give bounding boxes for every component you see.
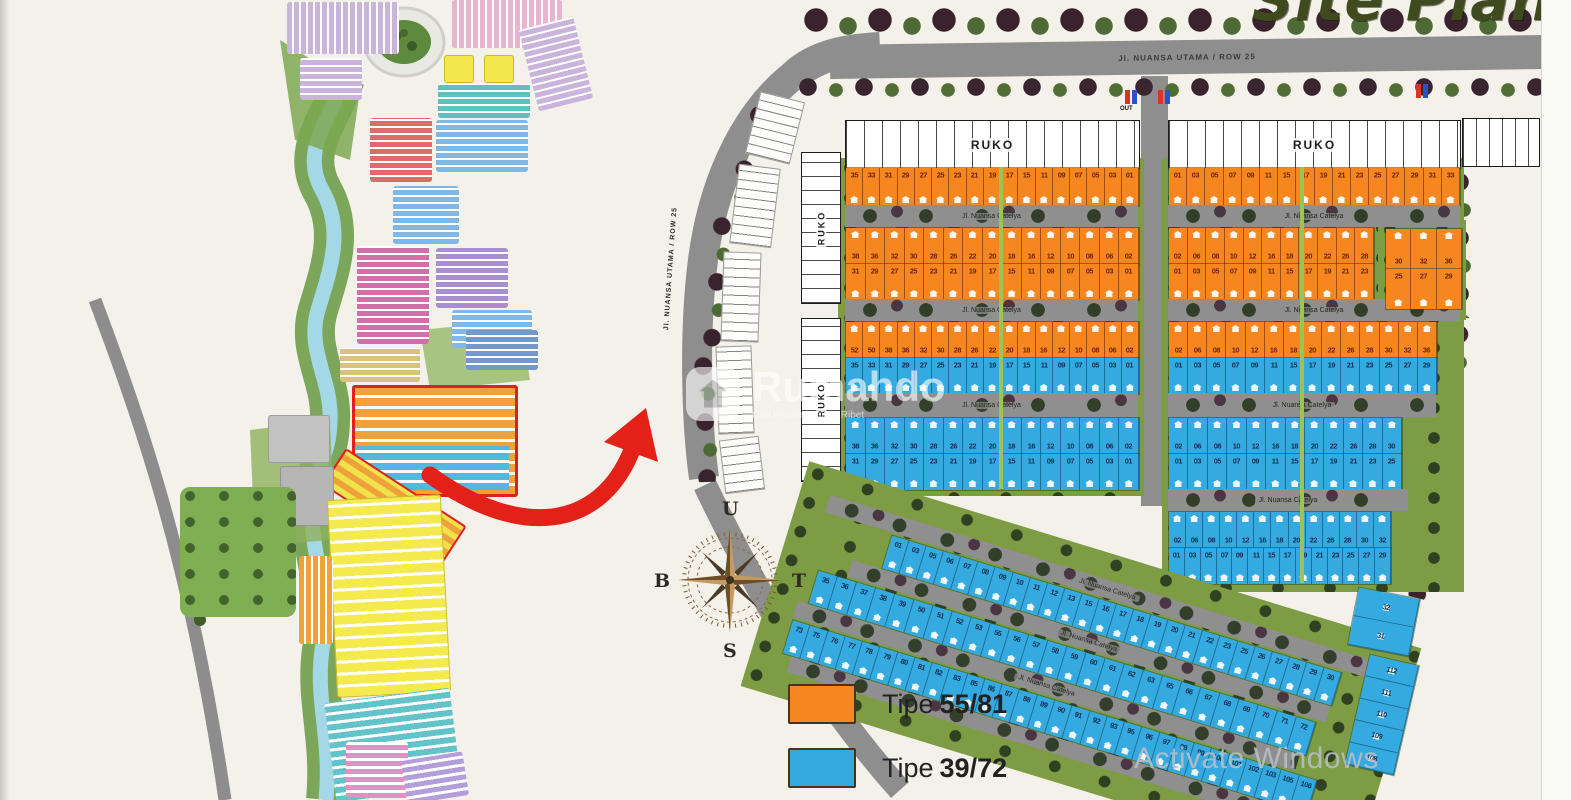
lot-25: 25 (1369, 168, 1387, 206)
lot-08: 08 (1080, 418, 1100, 454)
lot-number: 68 (1223, 699, 1232, 708)
lot-09: 09 (1232, 548, 1248, 584)
lot-number: 62 (1127, 670, 1136, 679)
lot-22: 22 (1322, 322, 1341, 358)
lot-number: 32 (1378, 537, 1385, 544)
cluster-orange-left (299, 556, 333, 644)
lot-07: 07 (1224, 168, 1242, 206)
lot-number: 89 (1039, 700, 1048, 709)
lot-25: 25 (905, 454, 925, 490)
lot-18: 18 (1271, 512, 1288, 548)
lot-row: 0103050709111517192123252729 (1168, 547, 1392, 585)
lot-21: 21 (1333, 168, 1351, 206)
lot-23: 23 (1363, 454, 1382, 490)
gate-in-out-left (1125, 90, 1137, 104)
lot-number: 11 (1028, 458, 1035, 465)
compass-star-icon (670, 520, 790, 640)
page-title: Site Plan (1252, 0, 1553, 34)
lot-29: 29 (1375, 548, 1391, 584)
lot-number: 23 (1369, 458, 1376, 465)
lot-17: 17 (1280, 548, 1296, 584)
lot-row: 0206081012161820222628 (1168, 227, 1375, 265)
lot-number: 18 (1008, 253, 1015, 260)
lot-number: 06 (1190, 537, 1197, 544)
lot-number: 36 (1445, 258, 1452, 265)
parking-strip-5 (719, 436, 765, 494)
lot-number: 58 (1051, 646, 1060, 655)
compass-east-label: T (792, 570, 806, 592)
lot-number: 05 (1210, 172, 1217, 179)
lot-number: 09 (1247, 172, 1254, 179)
lot-09: 09 (1247, 454, 1266, 490)
lot-number: 75 (812, 631, 821, 640)
lot-number: 26 (949, 253, 956, 260)
lot-number: 37 (859, 588, 868, 597)
lot-27: 27 (915, 168, 932, 206)
lot-number: 16 (1267, 253, 1274, 260)
lot-23: 23 (924, 264, 944, 300)
lot-number: 39 (898, 600, 907, 609)
lot-number: 17 (1308, 362, 1315, 369)
lot-16: 16 (1036, 322, 1053, 358)
lot-number: 31 (852, 268, 859, 275)
lot-number: 28 (1344, 537, 1351, 544)
lot-number: 21 (1349, 458, 1356, 465)
lot-30: 30 (1357, 512, 1374, 548)
out-arrow-icon (1423, 84, 1428, 98)
lot-31: 31 (1424, 168, 1442, 206)
lot-number: 18 (1136, 615, 1145, 624)
lot-number: 36 (871, 443, 878, 450)
lot-number: 27 (891, 458, 898, 465)
lot-06: 06 (1186, 512, 1203, 548)
lot-23: 23 (1355, 264, 1374, 300)
lot-number: 18 (1289, 347, 1296, 354)
lot-07: 07 (1217, 548, 1233, 584)
lot-29: 29 (866, 264, 886, 300)
lot-number: 21 (971, 362, 978, 369)
lot-01: 01 (1122, 358, 1139, 394)
lot-number: 23 (1366, 362, 1373, 369)
lot-27: 27 (1387, 168, 1405, 206)
cluster-blue-1 (436, 120, 528, 172)
legend-label: Tipe55/81 (882, 689, 1007, 720)
lot-21: 21 (944, 264, 964, 300)
lot-25: 25 (1343, 548, 1359, 584)
lot-number: 10 (1075, 347, 1082, 354)
lot-03: 03 (1187, 168, 1205, 206)
lot-05: 05 (1087, 358, 1104, 394)
lot-number: 27 (1274, 657, 1283, 666)
lot-number: 10 (1230, 253, 1237, 260)
lot-number: 21 (1342, 268, 1349, 275)
lot-number: 09 (1047, 268, 1054, 275)
lot-number: 22 (988, 347, 995, 354)
lot-number: 50 (917, 605, 926, 614)
lot-17: 17 (1001, 358, 1018, 394)
lot-number: 06 (1106, 443, 1113, 450)
lot-03: 03 (1188, 264, 1207, 300)
lot-row: 01030507091115171921232527293133 (1168, 167, 1461, 207)
lot-26: 26 (1341, 322, 1360, 358)
street-label: Jl. Nuansa Catelya (958, 307, 1025, 314)
lot-number: 07 (963, 562, 972, 571)
lot-number: 15 (1023, 362, 1030, 369)
lot-number: 09 (1057, 362, 1064, 369)
lot-number: 12 (1252, 443, 1259, 450)
lot-29: 29 (1437, 269, 1462, 309)
lot-number: 21 (1316, 552, 1323, 559)
lot-number: 17 (988, 458, 995, 465)
lot-number: 07 (1220, 552, 1227, 559)
lot-number: 51 (936, 611, 945, 620)
lot-number: 77 (847, 642, 856, 651)
lot-number: 18 (1008, 443, 1015, 450)
lot-number: 08 (1213, 347, 1220, 354)
lot-number: 20 (988, 443, 995, 450)
top-road-label: Jl. NUANSA UTAMA / ROW 25 (830, 48, 1544, 67)
lot-number: 50 (868, 347, 875, 354)
lot-08: 08 (1206, 228, 1225, 264)
lot-number: 07 (1075, 362, 1082, 369)
lot-05: 05 (1206, 264, 1225, 300)
lot-10: 10 (1225, 228, 1244, 264)
lot-number: 91 (1074, 711, 1083, 720)
lot-01: 01 (1122, 168, 1139, 206)
lot-21: 21 (1312, 548, 1328, 584)
activate-windows-watermark: Activate Windows (1134, 742, 1379, 776)
lot-38: 38 (880, 322, 897, 358)
lot-36: 36 (898, 322, 915, 358)
lot-number: 16 (1101, 604, 1110, 613)
lot-09: 09 (1041, 454, 1061, 490)
lot-number: 18 (1286, 253, 1293, 260)
lot-11: 11 (1022, 264, 1042, 300)
lot-number: 08 (1086, 253, 1093, 260)
lot-12: 12 (1041, 418, 1061, 454)
lot-number: 16 (1040, 347, 1047, 354)
lot-11: 11 (1036, 358, 1053, 394)
lot-number: 11 (1268, 268, 1275, 275)
lot-number: 23 (1361, 268, 1368, 275)
compass-west-label: B (654, 570, 670, 592)
lot-number: 03 (1106, 268, 1113, 275)
lot-number: 79 (882, 652, 891, 661)
lot-number: 19 (988, 172, 995, 179)
lot-06: 06 (1100, 228, 1120, 264)
lot-number: 67 (1204, 693, 1213, 702)
lot-number: 01 (1174, 268, 1181, 275)
lot-number: 03 (1106, 458, 1113, 465)
lot-number: 28 (1369, 443, 1376, 450)
lot-07: 07 (1061, 454, 1081, 490)
compass-south-label: S (723, 640, 737, 662)
lot-number: 11 (1028, 268, 1035, 275)
lot-number: 13 (1066, 594, 1075, 603)
lot-number: 38 (878, 594, 887, 603)
lot-02: 02 (1169, 322, 1188, 358)
in-arrow-icon (1416, 84, 1421, 98)
lot-16: 16 (1262, 228, 1281, 264)
lot-28: 28 (1355, 228, 1374, 264)
lot-row: 383632302826222018161210080602 (845, 227, 1140, 265)
lot-number: 23 (1331, 552, 1338, 559)
lot-number: 27 (891, 268, 898, 275)
lot-number: 05 (1211, 268, 1218, 275)
lot-03: 03 (1188, 454, 1207, 490)
ruko-strip-right: RUKO (1168, 120, 1461, 169)
rumahdo-brand-text: Rumahdo (752, 366, 946, 408)
lot-12: 12 (1237, 512, 1254, 548)
lot-number: 15 (1289, 362, 1296, 369)
lot-number: 31 (1377, 631, 1386, 640)
lot-26: 26 (1337, 228, 1356, 264)
lot-23: 23 (1351, 168, 1369, 206)
lot-number: 21 (949, 268, 956, 275)
lot-31: 31 (846, 264, 866, 300)
lot-number: 05 (1213, 362, 1220, 369)
lot-number: 10 (1225, 537, 1232, 544)
lot-22: 22 (963, 228, 983, 264)
lot-number: 01 (1125, 458, 1132, 465)
lot-10: 10 (1061, 418, 1081, 454)
lot-19: 19 (963, 454, 983, 490)
lot-number: 109 (1370, 731, 1382, 741)
park-green (180, 487, 296, 617)
lot-number: 110 (1376, 710, 1388, 720)
lot-number: 59 (1070, 652, 1079, 661)
lot-01: 01 (1169, 454, 1188, 490)
lot-05: 05 (1208, 454, 1227, 490)
lot-number: 55 (993, 629, 1002, 638)
left-edge-shadow (0, 0, 10, 800)
lot-number: 12 (1242, 537, 1249, 544)
lot-number: 06 (1109, 347, 1116, 354)
lot-number: 15 (1008, 458, 1015, 465)
lot-number: 05 (1092, 172, 1099, 179)
lot-number: 16 (1270, 347, 1277, 354)
lot-number: 22 (1328, 347, 1335, 354)
lot-number: 90 (1057, 706, 1066, 715)
lot-number: 26 (1257, 652, 1266, 661)
lot-number: 25 (910, 458, 917, 465)
lot-number: 81 (917, 663, 926, 672)
lot-number: 01 (1174, 172, 1181, 179)
lot-number: 15 (1283, 172, 1290, 179)
lot-number: 01 (894, 541, 903, 550)
lot-number: 02 (1174, 347, 1181, 354)
compass-north-label: U (722, 498, 739, 520)
lot-number: 31 (885, 172, 892, 179)
lot-number: 03 (1189, 552, 1196, 559)
lot-number: 28 (1366, 347, 1373, 354)
lot-23: 23 (1328, 548, 1344, 584)
lot-number: 17 (1311, 458, 1318, 465)
lot-25: 25 (1383, 454, 1402, 490)
lot-15: 15 (1002, 454, 1022, 490)
lot-number: 29 (902, 172, 909, 179)
street: Jl. Nuansa Catelya (1168, 205, 1460, 227)
lot-number: 76 (830, 636, 839, 645)
lot-number: 02 (1126, 347, 1133, 354)
lot-20: 20 (1001, 322, 1018, 358)
lot-number: 61 (1108, 664, 1117, 673)
lot-21: 21 (967, 168, 984, 206)
lot-number: 19 (1153, 620, 1162, 629)
lot-number: 02 (1125, 443, 1132, 450)
lot-number: 15 (1291, 458, 1298, 465)
lot-number: 31 (1429, 172, 1436, 179)
lot-number: 19 (969, 458, 976, 465)
lot-number: 05 (1086, 458, 1093, 465)
lot-number: 32 (1404, 347, 1411, 354)
lot-09: 09 (1242, 168, 1260, 206)
lot-number: 105 (1282, 775, 1295, 785)
lot-number: 96 (1144, 732, 1153, 741)
lot-number: 57 (1031, 640, 1040, 649)
lot-number: 08 (1211, 253, 1218, 260)
lot-number: 52 (955, 617, 964, 626)
lot-number: 60 (1089, 658, 1098, 667)
lot-09: 09 (1244, 264, 1263, 300)
lot-06: 06 (1188, 418, 1207, 454)
lot-28: 28 (1360, 322, 1379, 358)
lot-number: 01 (1126, 172, 1133, 179)
lot-number: 10 (1233, 443, 1240, 450)
lot-number: 111 (1381, 688, 1392, 697)
lot-number: 28 (1361, 253, 1368, 260)
lot-number: 25 (1385, 362, 1392, 369)
lot-05: 05 (1080, 454, 1100, 490)
lot-number: 23 (954, 362, 961, 369)
lot-15: 15 (1002, 264, 1022, 300)
lot-30: 30 (1386, 229, 1411, 269)
lot-number: 07 (1230, 268, 1237, 275)
lot-number: 20 (1006, 347, 1013, 354)
lot-01: 01 (1169, 168, 1187, 206)
lot-number: 08 (1213, 443, 1220, 450)
lot-17: 17 (1303, 358, 1322, 394)
street-label: Jl. Nuansa Catelya (1281, 213, 1348, 220)
lot-01: 01 (1169, 264, 1188, 300)
lot-number: 30 (937, 347, 944, 354)
lot-28: 28 (924, 418, 944, 454)
lot-16: 16 (1266, 418, 1285, 454)
lot-number: 29 (871, 268, 878, 275)
lot-number: 30 (1388, 443, 1395, 450)
lot-number: 22 (969, 443, 976, 450)
lot-number: 08 (1092, 347, 1099, 354)
lot-row: 303236 (1385, 228, 1463, 270)
lot-number: 10 (1066, 443, 1073, 450)
cluster-tan (340, 348, 420, 382)
lot-36: 36 (866, 228, 886, 264)
rumahdo-watermark: Rumahdo Cari Properti Tanpa Ribet (686, 366, 946, 421)
lot-19: 19 (1322, 358, 1341, 394)
lot-number: 09 (1236, 552, 1243, 559)
lot-26: 26 (944, 228, 964, 264)
lot-number: 33 (868, 172, 875, 179)
lot-36: 36 (866, 418, 886, 454)
lot-number: 29 (1309, 668, 1318, 677)
lot-number: 20 (988, 253, 995, 260)
lot-12: 12 (1053, 322, 1070, 358)
lot-18: 18 (1018, 322, 1035, 358)
lot-row: 010305070911151719212325 (1168, 453, 1403, 491)
lot-08: 08 (1087, 322, 1104, 358)
lot-number: 36 (871, 253, 878, 260)
lot-07: 07 (1070, 168, 1087, 206)
lot-number: 17 (1305, 268, 1312, 275)
lot-number: 70 (1261, 711, 1270, 720)
lot-number: 23 (930, 268, 937, 275)
lot-number: 35 (850, 172, 857, 179)
gate-out-label: OUT (1120, 106, 1133, 112)
ruko-label: RUKO (1288, 138, 1341, 152)
lot-number: 21 (949, 458, 956, 465)
lot-23: 23 (1360, 358, 1379, 394)
lot-number: 12 (1249, 253, 1256, 260)
lot-18: 18 (1281, 228, 1300, 264)
lot-16: 16 (1022, 228, 1042, 264)
lot-38: 38 (846, 418, 866, 454)
lot-07: 07 (1070, 358, 1087, 394)
lot-number: 18 (1276, 537, 1283, 544)
lot-10: 10 (1226, 322, 1245, 358)
lot-22: 22 (963, 418, 983, 454)
lot-number: 29 (1445, 273, 1452, 280)
lot-pair-block: 3231 (1347, 586, 1421, 657)
lot-26: 26 (944, 418, 964, 454)
lot-number: 30 (910, 443, 917, 450)
lot-number: 01 (1125, 268, 1132, 275)
lot-32: 32 (1399, 322, 1418, 358)
ruko-label: RUKO (816, 208, 826, 249)
lot-11: 11 (1265, 358, 1284, 394)
lot-02: 02 (1169, 512, 1186, 548)
lot-28: 28 (1363, 418, 1382, 454)
lot-number: 07 (1233, 458, 1240, 465)
in-arrow-icon (1158, 90, 1163, 104)
lot-number: 28 (1291, 662, 1300, 671)
lot-number: 63 (1146, 676, 1155, 685)
lot-16: 16 (1254, 512, 1271, 548)
lot-number: 32 (1382, 603, 1391, 612)
lot-21: 21 (1344, 454, 1363, 490)
lot-number: 15 (1023, 172, 1030, 179)
rumahdo-tagline: Cari Properti Tanpa Ribet (752, 410, 946, 421)
lot-number: 08 (1086, 443, 1093, 450)
lot-08: 08 (1207, 322, 1226, 358)
lot-31: 31 (880, 168, 897, 206)
lot-number: 15 (1268, 552, 1275, 559)
lot-number: 29 (871, 458, 878, 465)
lot-35: 35 (846, 168, 863, 206)
lot-number: 12 (1049, 588, 1058, 597)
lot-number: 53 (974, 623, 983, 632)
lot-17: 17 (1001, 168, 1018, 206)
lot-number: 07 (1066, 458, 1073, 465)
lot-number: 06 (1193, 253, 1200, 260)
lot-25: 25 (905, 264, 925, 300)
lot-number: 82 (934, 668, 943, 677)
lot-16: 16 (1265, 322, 1284, 358)
lot-03: 03 (1105, 168, 1122, 206)
cluster-red-1 (370, 118, 432, 182)
green-divider-right (1300, 167, 1304, 583)
lot-number: 05 (928, 551, 937, 560)
lot-18: 18 (1002, 228, 1022, 264)
